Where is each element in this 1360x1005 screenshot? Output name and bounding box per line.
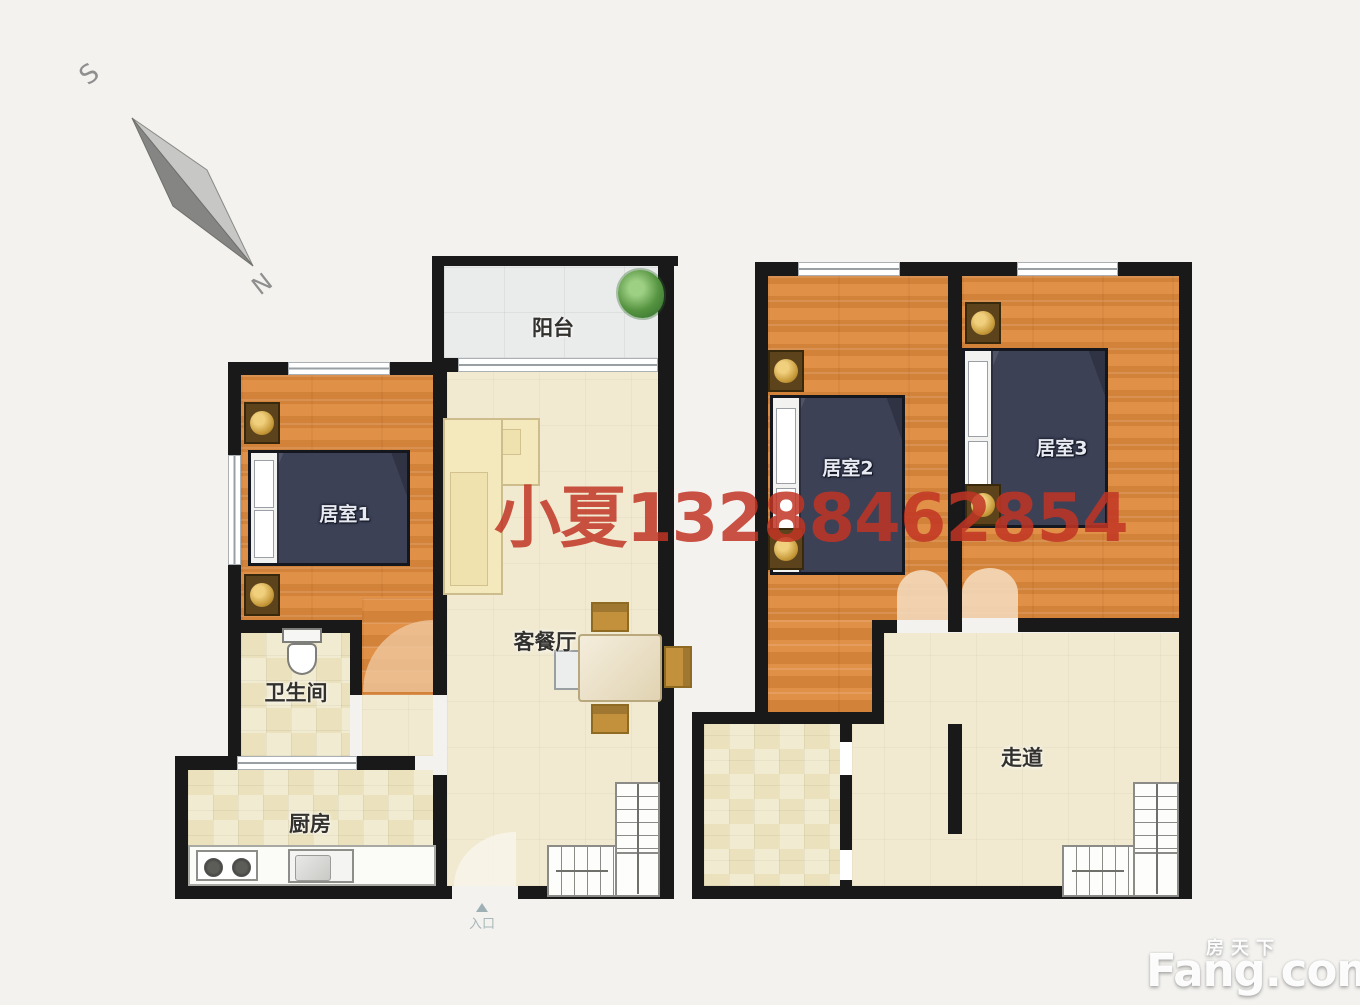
toilet-icon [287, 643, 317, 675]
kitchen-label: 厨房 [289, 808, 331, 838]
balcony-label: 阳台 [532, 312, 574, 342]
hallway-floor [362, 695, 433, 756]
wall [1179, 262, 1192, 899]
stairs-rail [1156, 784, 1158, 894]
living-dining-label: 客餐厅 [514, 626, 577, 656]
pillow-icon [254, 510, 274, 558]
window [1017, 262, 1118, 276]
window [237, 756, 357, 770]
pillow-icon [968, 361, 988, 436]
corridor-floor [852, 724, 884, 886]
door-opening [840, 742, 852, 775]
chair-icon [591, 704, 629, 734]
window [228, 455, 241, 565]
compass-icon: S N [20, 18, 320, 328]
chair-icon [664, 646, 692, 688]
bedside-stool-icon [244, 402, 280, 444]
wall [175, 886, 452, 899]
toilet-icon [282, 628, 322, 643]
wall [1018, 618, 1179, 632]
stairs-rail [637, 784, 639, 894]
sofa-cushion [450, 472, 488, 586]
dining-table-icon [578, 634, 662, 702]
compass-south-label: S [74, 58, 105, 92]
entrance-arrow-icon [476, 903, 488, 912]
plant-icon [618, 270, 664, 318]
bedroom1-label: 居室1 [319, 500, 370, 527]
wall [432, 256, 444, 370]
stairs-arrow [556, 870, 608, 872]
utility-room-floor [704, 724, 840, 886]
wall [432, 256, 678, 266]
window [458, 358, 658, 372]
door-arc [897, 570, 948, 620]
entrance-label: 入口 [469, 917, 495, 932]
corridor-label: 走道 [1001, 742, 1043, 772]
door-opening [840, 850, 852, 880]
wall [948, 262, 962, 632]
bedroom3-label: 居室3 [1036, 434, 1087, 461]
stairs-arrow [1072, 870, 1124, 872]
bedside-stool-icon [244, 574, 280, 616]
pillow-icon [254, 460, 274, 508]
bedroom2-floor [768, 620, 872, 712]
compass-north-label: N [246, 268, 277, 301]
wall [692, 712, 884, 724]
phone-watermark: 小夏13288462854 [494, 464, 1128, 561]
bedside-stool-icon [965, 302, 1001, 344]
stove-icon [196, 850, 258, 881]
chair-icon [591, 602, 629, 632]
wall [948, 724, 962, 834]
fang-logo-cn: 房天下 [1206, 934, 1281, 960]
wall [658, 256, 674, 899]
wall [692, 712, 704, 899]
window [798, 262, 900, 276]
wall [175, 756, 188, 899]
sink-icon [288, 849, 354, 883]
door-arc [962, 568, 1018, 618]
compass-needle-dark [132, 118, 253, 266]
wall [350, 620, 362, 695]
bedside-stool-icon [768, 350, 804, 392]
fang-logo: 房天下 Fang.com [1146, 948, 1360, 993]
bathroom-label: 卫生间 [265, 677, 328, 707]
window [288, 362, 390, 375]
floorplan-canvas: S N 居室1 [0, 0, 1360, 1005]
entrance-marker: 入口 [469, 903, 495, 932]
wall [357, 756, 415, 770]
wall [872, 620, 884, 724]
highchair-icon [554, 650, 580, 690]
